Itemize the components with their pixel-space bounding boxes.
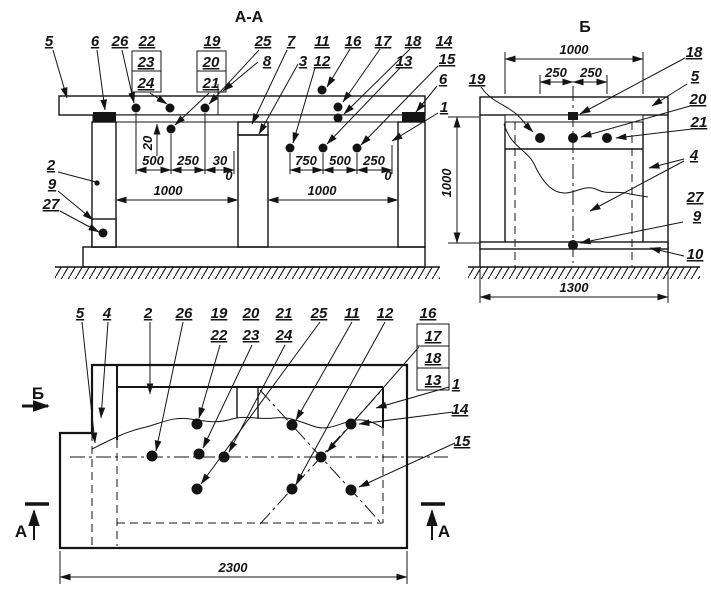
aa-dim-lines bbox=[116, 117, 457, 243]
dim-plan-2300: 2300 bbox=[218, 560, 249, 575]
dim-500-left: 500 bbox=[142, 153, 164, 168]
callout-aa-7: 7 bbox=[287, 33, 296, 50]
top-plate bbox=[93, 115, 425, 122]
callout-plan-12: 12 bbox=[377, 305, 394, 322]
callout-aa-6: 6 bbox=[91, 33, 100, 50]
callout-aa-9: 9 bbox=[48, 176, 57, 193]
callout-plan-22: 22 bbox=[210, 327, 228, 344]
dim-250-left: 250 bbox=[176, 153, 199, 168]
aa-structure bbox=[55, 84, 440, 279]
dim-0-left: 0 bbox=[225, 168, 233, 183]
callout-aa-16: 16 bbox=[345, 33, 362, 50]
aa-extension-lines bbox=[136, 113, 479, 243]
dim-b-1300: 1300 bbox=[560, 280, 590, 295]
aa-leaders bbox=[53, 49, 438, 232]
callout-aa-22: 22 bbox=[138, 33, 156, 50]
callout-b-4: 4 bbox=[689, 147, 699, 164]
section-a-right-letter: А bbox=[438, 522, 450, 541]
b-dim-lines bbox=[480, 59, 668, 297]
dim-b-250-left: 250 bbox=[544, 65, 567, 80]
callout-plan-11: 11 bbox=[344, 305, 360, 322]
callout-aa-14: 14 bbox=[436, 33, 453, 50]
dim-b-250-right: 250 bbox=[579, 65, 602, 80]
callout-aa-6-right: 6 bbox=[439, 71, 448, 88]
callout-plan-18: 18 bbox=[425, 350, 442, 367]
callout-aa-5: 5 bbox=[45, 33, 54, 50]
b-structure bbox=[468, 86, 700, 279]
section-b-title: Б bbox=[579, 19, 591, 36]
dim-b-1000: 1000 bbox=[560, 42, 590, 57]
callout-plan-16: 16 bbox=[420, 305, 437, 322]
right-wall bbox=[398, 122, 425, 247]
callout-plan-5: 5 bbox=[76, 305, 85, 322]
dim-1000-left: 1000 bbox=[154, 183, 184, 198]
ground-hatch bbox=[55, 267, 440, 279]
callout-plan-2: 2 bbox=[143, 305, 153, 322]
dim-1000-right: 1000 bbox=[308, 183, 338, 198]
callout-aa-21: 21 bbox=[202, 75, 220, 92]
callout-b-27: 27 bbox=[686, 189, 704, 206]
callout-aa-3: 3 bbox=[299, 53, 308, 70]
b-ground-hatch bbox=[468, 267, 700, 279]
b-extension-lines bbox=[480, 52, 668, 303]
callout-aa-19: 19 bbox=[204, 33, 221, 50]
dim-250-right: 250 bbox=[362, 153, 385, 168]
bottom-slab bbox=[83, 247, 425, 267]
callout-b-9: 9 bbox=[693, 208, 702, 225]
middle-wall bbox=[238, 135, 268, 247]
drawing-canvas: А-А bbox=[0, 0, 711, 591]
callout-plan-1: 1 bbox=[452, 376, 460, 393]
dim-500-right: 500 bbox=[329, 153, 351, 168]
view-section-aa: А-А bbox=[42, 9, 479, 279]
callout-aa-11: 11 bbox=[314, 33, 330, 50]
callout-b-20: 20 bbox=[689, 91, 707, 108]
view-plan: 5 4 2 26 19 22 20 23 21 24 25 11 12 16 1… bbox=[15, 305, 471, 584]
callout-plan-23: 23 bbox=[242, 327, 260, 344]
dim-1000-vertical: 1000 bbox=[439, 168, 454, 198]
callout-b-19: 19 bbox=[469, 71, 486, 88]
callout-aa-26: 26 bbox=[111, 33, 129, 50]
b-dimensions: 1000 250 250 1300 bbox=[480, 42, 668, 303]
aa-sensor-dots bbox=[94, 86, 361, 238]
leader-2 bbox=[58, 172, 96, 182]
callout-plan-24: 24 bbox=[275, 327, 293, 344]
middle-wall-cap bbox=[238, 122, 268, 135]
callout-aa-18: 18 bbox=[405, 33, 422, 50]
dim-0-right: 0 bbox=[384, 168, 392, 183]
callout-aa-27: 27 bbox=[42, 196, 60, 213]
callout-b-21: 21 bbox=[690, 114, 708, 131]
callout-plan-25: 25 bbox=[310, 305, 328, 322]
callout-plan-21: 21 bbox=[275, 305, 293, 322]
callout-plan-13: 13 bbox=[425, 372, 442, 389]
plan-dimensions: 2300 bbox=[60, 551, 407, 584]
callout-aa-13: 13 bbox=[396, 53, 413, 70]
callout-b-10: 10 bbox=[687, 246, 704, 263]
callout-plan-15: 15 bbox=[454, 433, 471, 450]
section-aa-title: А-А bbox=[235, 9, 264, 26]
view-section-b: Б bbox=[468, 19, 707, 303]
bearing-pad-left bbox=[93, 112, 116, 122]
callout-b-18: 18 bbox=[686, 44, 703, 61]
callout-aa-25: 25 bbox=[254, 33, 272, 50]
callout-aa-8: 8 bbox=[263, 53, 272, 70]
callout-aa-24: 24 bbox=[137, 75, 155, 92]
plan-structure bbox=[60, 365, 448, 548]
callout-aa-20: 20 bbox=[202, 54, 220, 71]
callout-aa-12: 12 bbox=[314, 53, 331, 70]
bearing-pad-right bbox=[402, 112, 425, 122]
section-a-left-letter: А bbox=[15, 522, 27, 541]
callout-plan-4: 4 bbox=[102, 305, 112, 322]
dim-20: 20 bbox=[140, 135, 155, 151]
callout-plan-19: 19 bbox=[211, 305, 228, 322]
callout-plan-20: 20 bbox=[242, 305, 260, 322]
callout-plan-14: 14 bbox=[452, 401, 469, 418]
b-leaders bbox=[481, 58, 692, 256]
callout-aa-17: 17 bbox=[375, 33, 392, 50]
dim-30: 30 bbox=[213, 153, 228, 168]
callout-b-5: 5 bbox=[691, 68, 700, 85]
callout-aa-23: 23 bbox=[137, 54, 155, 71]
view-b-letter: Б bbox=[32, 384, 44, 403]
callout-plan-17: 17 bbox=[425, 328, 442, 345]
callout-aa-15: 15 bbox=[439, 51, 456, 68]
callout-aa-2: 2 bbox=[46, 157, 56, 174]
engineering-drawing-page: А-А bbox=[0, 0, 711, 591]
dim-750: 750 bbox=[295, 153, 317, 168]
callout-aa-1: 1 bbox=[440, 99, 448, 116]
callout-plan-26: 26 bbox=[175, 305, 193, 322]
